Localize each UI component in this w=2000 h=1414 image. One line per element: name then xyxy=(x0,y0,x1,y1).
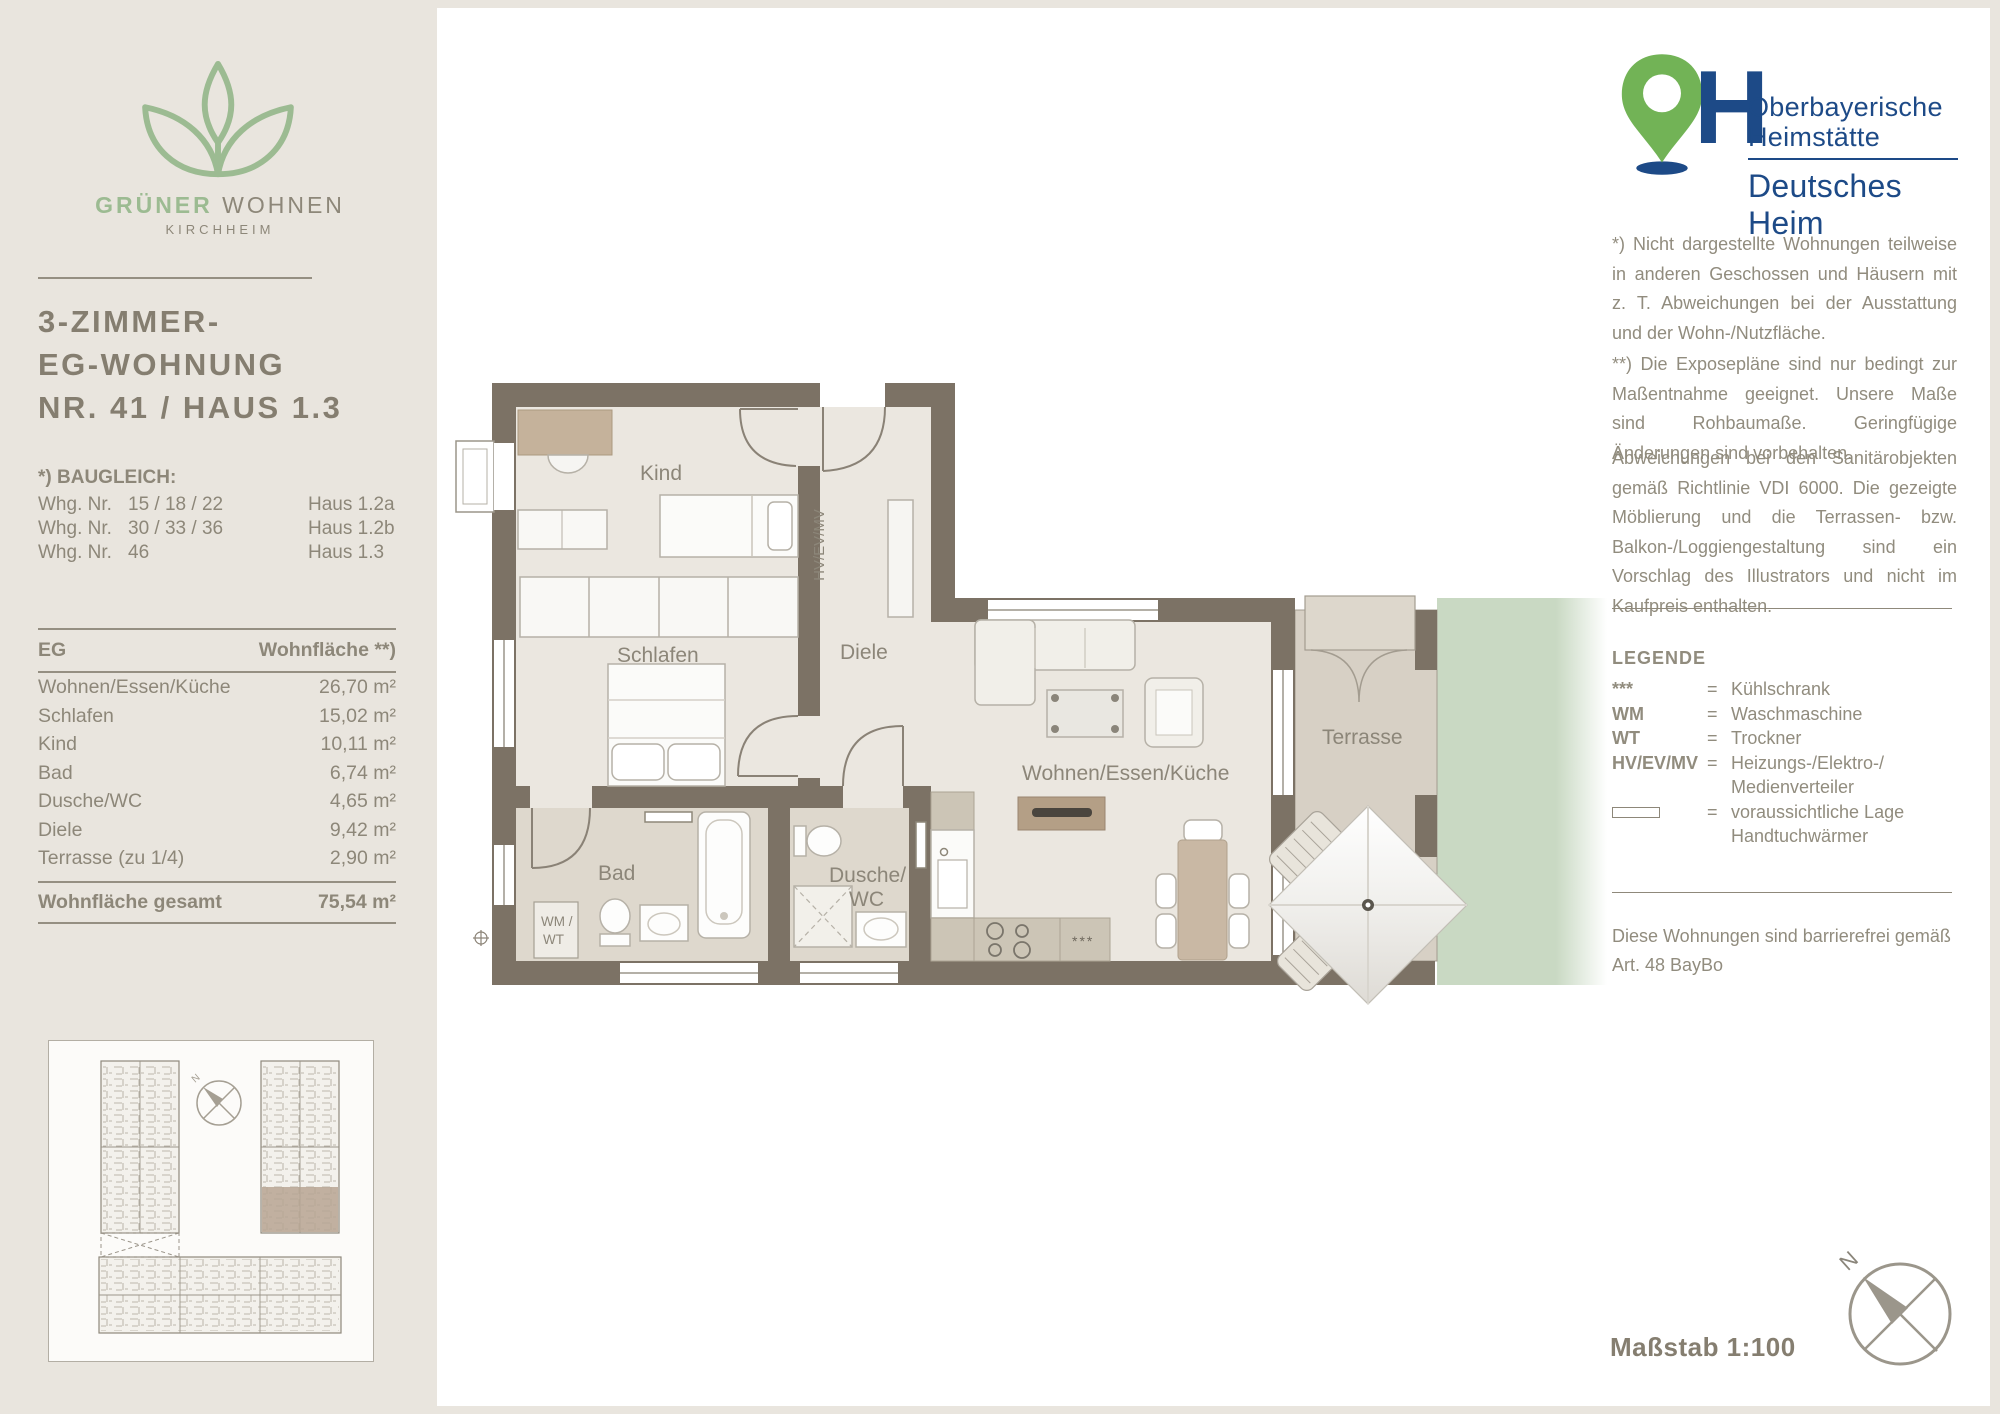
room-name: Terrasse (zu 1/4) xyxy=(38,844,184,873)
label-bad: Bad xyxy=(598,862,635,885)
fridge-marker: *** xyxy=(1072,933,1094,949)
legend-symbol: *** xyxy=(1612,677,1707,702)
room-name: Dusche/WC xyxy=(38,787,142,816)
legend-text: Trockner xyxy=(1731,726,1941,751)
minimap-compass-icon: N xyxy=(190,1072,241,1125)
table-row: Dusche/WC4,65 m² xyxy=(38,787,396,816)
whg-label: Whg. Nr. xyxy=(38,541,128,565)
compass-north-label: N xyxy=(1838,1248,1863,1275)
equals: = xyxy=(1707,702,1731,727)
equals: = xyxy=(1707,726,1731,751)
label-diele: Diele xyxy=(840,641,888,664)
toilet-icon xyxy=(807,826,841,856)
publisher-rule xyxy=(1748,158,1958,160)
label-schlafen: Schlafen xyxy=(617,644,699,667)
awning xyxy=(1305,596,1415,650)
legend-symbol: HV/EV/MV xyxy=(1612,751,1707,800)
label-wm: WM / xyxy=(541,914,573,929)
whg-numbers: 15 / 18 / 22 xyxy=(128,493,238,517)
wm-wt-box xyxy=(534,902,578,958)
room-area: 6,74 m² xyxy=(330,759,396,788)
col-wohnflaeche: Wohnfläche **) xyxy=(259,639,396,662)
room-area: 15,02 m² xyxy=(319,702,396,731)
table-row: Kind10,11 m² xyxy=(38,730,396,759)
haus-label: Haus 1.2a xyxy=(238,493,418,517)
legend-heading: LEGENDE xyxy=(1612,648,1957,669)
publisher-line2: Heimstätte xyxy=(1748,122,1958,152)
equals: = xyxy=(1707,800,1731,849)
legend-symbol: WM xyxy=(1612,702,1707,727)
sidebar-divider xyxy=(38,277,312,279)
title-line2: EG-WOHNUNG xyxy=(38,343,418,386)
svg-text:N: N xyxy=(190,1072,203,1085)
survey-marker-icon xyxy=(473,930,489,946)
toilet-icon xyxy=(600,899,630,933)
equals: = xyxy=(1707,751,1731,800)
legend-row: ***=Kühlschrank xyxy=(1612,677,1957,702)
table-row: Diele9,42 m² xyxy=(38,816,396,845)
table-row: Terrasse (zu 1/4)2,90 m² xyxy=(38,844,396,873)
towel-warmer-icon xyxy=(645,812,692,822)
baugleich-block: *) BAUGLEICH: Whg. Nr. 15 / 18 / 22 Haus… xyxy=(38,466,418,565)
room-name: Kind xyxy=(38,730,77,759)
page-title: 3-ZIMMER- EG-WOHNUNG NR. 41 / HAUS 1.3 xyxy=(38,300,418,429)
total-label: Wohnfläche gesamt xyxy=(38,891,222,914)
connector-dashed xyxy=(101,1233,179,1257)
compass-icon: N xyxy=(1838,1248,1962,1376)
total-value: 75,54 m² xyxy=(318,891,396,914)
baugleich-row: Whg. Nr. 15 / 18 / 22 Haus 1.2a xyxy=(38,493,418,517)
site-plan-thumbnail: N xyxy=(48,1040,374,1362)
label-wohnen: Wohnen/Essen/Küche xyxy=(1022,762,1229,785)
label-hv: HV/EV/MV xyxy=(811,509,828,581)
equals: = xyxy=(1707,677,1731,702)
table-row: Bad6,74 m² xyxy=(38,759,396,788)
publisher-name: Oberbayerische Heimstätte Deutsches Heim xyxy=(1748,92,1958,242)
tv-icon xyxy=(1032,808,1092,817)
legend-text: voraussichtliche Lage Handtuchwärmer xyxy=(1731,800,1941,849)
area-table-header: EG Wohnfläche **) xyxy=(38,628,396,673)
room-name: Schlafen xyxy=(38,702,114,731)
table-total-row: Wohnfläche gesamt 75,54 m² xyxy=(38,881,396,924)
legend: LEGENDE ***=Kühlschrank WM=Waschmaschine… xyxy=(1612,648,1957,849)
baugleich-heading: *) BAUGLEICH: xyxy=(38,466,418,490)
hv-closet xyxy=(888,500,913,617)
label-kind: Kind xyxy=(640,462,682,485)
room-area: 26,70 m² xyxy=(319,673,396,702)
scale-label: Maßstab 1:100 xyxy=(1610,1332,1796,1363)
brand-name-bold: GRÜNER xyxy=(95,192,213,218)
whg-numbers: 30 / 33 / 36 xyxy=(128,517,238,541)
towel-warmer-icon xyxy=(916,822,926,868)
whg-label: Whg. Nr. xyxy=(38,493,128,517)
label-terrasse: Terrasse xyxy=(1322,726,1403,749)
publisher-logo: H Oberbayerische Heimstätte Deutsches He… xyxy=(1612,52,1962,202)
whg-numbers: 46 xyxy=(128,541,238,565)
legend-text: Heizungs-/Elektro-/ Medienverteiler xyxy=(1731,751,1941,800)
whg-label: Whg. Nr. xyxy=(38,517,128,541)
room-name: Wohnen/Essen/Küche xyxy=(38,673,231,702)
label-dusche-1: Dusche/ xyxy=(829,864,906,887)
table-row: Schlafen15,02 m² xyxy=(38,702,396,731)
lotus-logo-icon xyxy=(118,58,318,186)
page: GRÜNER WOHNEN KIRCHHEIM 3-ZIMMER- EG-WOH… xyxy=(0,0,2000,1414)
garden-area xyxy=(1437,598,1607,985)
room-name: Diele xyxy=(38,816,82,845)
legend-row: WT=Trockner xyxy=(1612,726,1957,751)
label-dusche-2: WC xyxy=(849,888,884,911)
legend-row: HV/EV/MV=Heizungs-/Elektro-/ Medienverte… xyxy=(1612,751,1957,800)
note-paragraph-1: *) Nicht dargestellte Wohnungen teilweis… xyxy=(1612,230,1957,348)
brand-location: KIRCHHEIM xyxy=(20,222,420,237)
brand-name-regular: WOHNEN xyxy=(222,192,345,218)
brand-name: GRÜNER WOHNEN xyxy=(20,192,420,219)
table-row: Wohnen/Essen/Küche26,70 m² xyxy=(38,673,396,702)
rule-above-legend xyxy=(1612,608,1952,609)
highlighted-unit xyxy=(262,1187,338,1232)
towel-warmer-legend-icon xyxy=(1612,800,1707,849)
col-eg: EG xyxy=(38,639,66,662)
legend-row: =voraussichtliche Lage Handtuchwärmer xyxy=(1612,800,1957,849)
publisher-line1: Oberbayerische xyxy=(1748,92,1958,122)
room-name: Bad xyxy=(38,759,73,788)
label-wt: WT xyxy=(543,932,564,947)
haus-label: Haus 1.2b xyxy=(238,517,418,541)
room-area: 9,42 m² xyxy=(330,816,396,845)
baugleich-row: Whg. Nr. 30 / 33 / 36 Haus 1.2b xyxy=(38,517,418,541)
room-area: 4,65 m² xyxy=(330,787,396,816)
floor-plan: *** xyxy=(450,370,1610,1010)
kitchen-sink-icon xyxy=(938,860,967,908)
site-plan-drawing: N xyxy=(49,1041,373,1361)
legend-text: Kühlschrank xyxy=(1731,677,1941,702)
note-paragraph-3: Abweichungen bei den Sanitärobjekten gem… xyxy=(1612,444,1957,621)
rule-below-legend xyxy=(1612,892,1952,893)
room-area: 2,90 m² xyxy=(330,844,396,873)
baugleich-row: Whg. Nr. 46 Haus 1.3 xyxy=(38,541,418,565)
area-table: EG Wohnfläche **) Wohnen/Essen/Küche26,7… xyxy=(38,628,396,924)
haus-label: Haus 1.3 xyxy=(238,541,418,565)
title-line1: 3-ZIMMER- xyxy=(38,300,418,343)
title-line3: NR. 41 / HAUS 1.3 xyxy=(38,386,418,429)
room-area: 10,11 m² xyxy=(320,730,396,759)
legend-row: WM=Waschmaschine xyxy=(1612,702,1957,727)
legend-text: Waschmaschine xyxy=(1731,702,1941,727)
legend-symbol: WT xyxy=(1612,726,1707,751)
barrier-free-note: Diese Wohnungen sind barrierefrei gemäß … xyxy=(1612,922,1952,980)
